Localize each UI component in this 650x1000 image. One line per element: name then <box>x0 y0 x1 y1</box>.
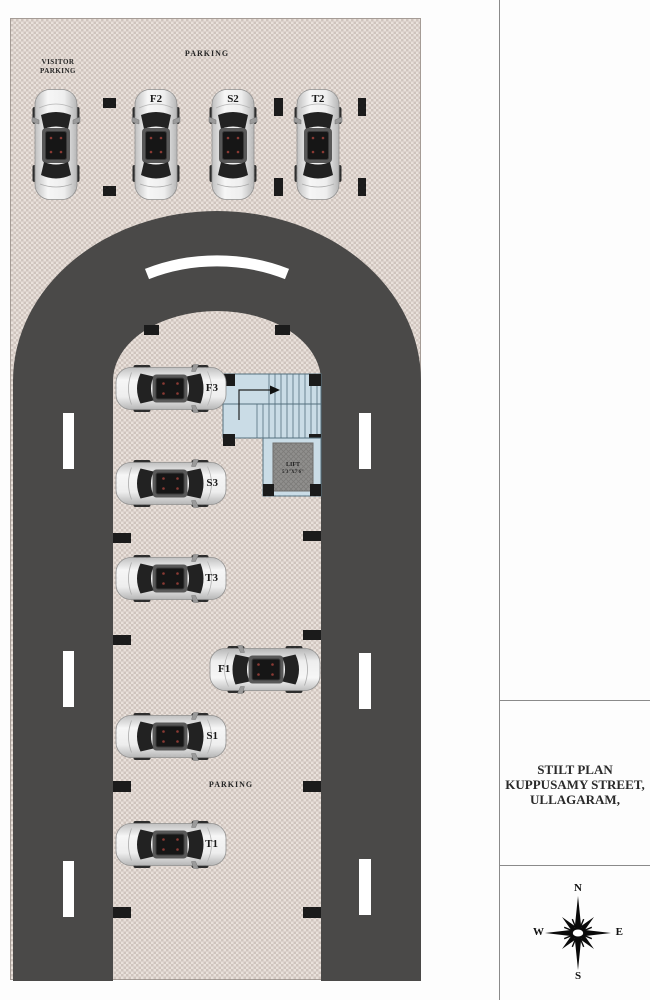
parking-area-label-bottom: PARKING <box>181 780 281 789</box>
compass-north-label: N <box>533 882 623 894</box>
drawing-title-block: STILT PLAN KUPPUSAMY STREET, ULLAGARAM, <box>500 762 650 807</box>
compass-east-label: E <box>616 926 623 938</box>
compass-south-label: S <box>533 970 623 982</box>
title-line-1: STILT PLAN <box>500 762 650 777</box>
title-line-3: ULLAGARAM, <box>500 792 650 807</box>
car-t3: T3 <box>114 553 227 603</box>
car-s3: S3 <box>114 458 227 508</box>
stall-label-t3: T3 <box>205 572 218 584</box>
car-t2: T2 <box>293 88 343 201</box>
lift-label: LIFT <box>286 462 300 468</box>
staircase <box>223 374 321 446</box>
stall-label-f1: F1 <box>218 663 230 675</box>
stall-label-t1: T1 <box>205 838 218 850</box>
compass-rose: N S W E <box>533 882 623 982</box>
title-line-2: KUPPUSAMY STREET, <box>500 777 650 792</box>
stall-label-s1: S1 <box>206 730 218 742</box>
visitor-parking-line2: PARKING <box>27 67 89 76</box>
car-f3: F3 <box>114 363 227 413</box>
stall-label-f3: F3 <box>206 382 218 394</box>
stall-label-s3: S3 <box>206 477 218 489</box>
car-s1: S1 <box>114 711 227 761</box>
panel-horizontal-divider-2 <box>499 865 650 866</box>
car-f2: F2 <box>131 88 181 201</box>
parking-area-label-top: PARKING <box>157 49 257 58</box>
compass-west-label: W <box>533 926 544 938</box>
floor-plan: LIFT 5'3"X7'6" PARKING VISITOR PARKING P… <box>10 18 421 980</box>
car-visitor <box>31 88 81 201</box>
stilt-plan-sheet: LIFT 5'3"X7'6" PARKING VISITOR PARKING P… <box>0 0 650 1000</box>
panel-vertical-divider <box>499 0 500 1000</box>
stall-label-t2: T2 <box>293 93 343 105</box>
car-t1: T1 <box>114 819 227 869</box>
car-f1: F1 <box>208 644 321 694</box>
panel-horizontal-divider-1 <box>499 700 650 701</box>
lift-size-label: 5'3"X7'6" <box>282 470 304 475</box>
stall-label-f2: F2 <box>131 93 181 105</box>
stall-label-s2: S2 <box>208 93 258 105</box>
visitor-parking-label: VISITOR PARKING <box>27 58 89 75</box>
compass-star-icon <box>533 882 623 982</box>
car-s2: S2 <box>208 88 258 201</box>
lift-shaft: LIFT 5'3"X7'6" <box>263 438 321 496</box>
visitor-parking-line1: VISITOR <box>27 58 89 67</box>
